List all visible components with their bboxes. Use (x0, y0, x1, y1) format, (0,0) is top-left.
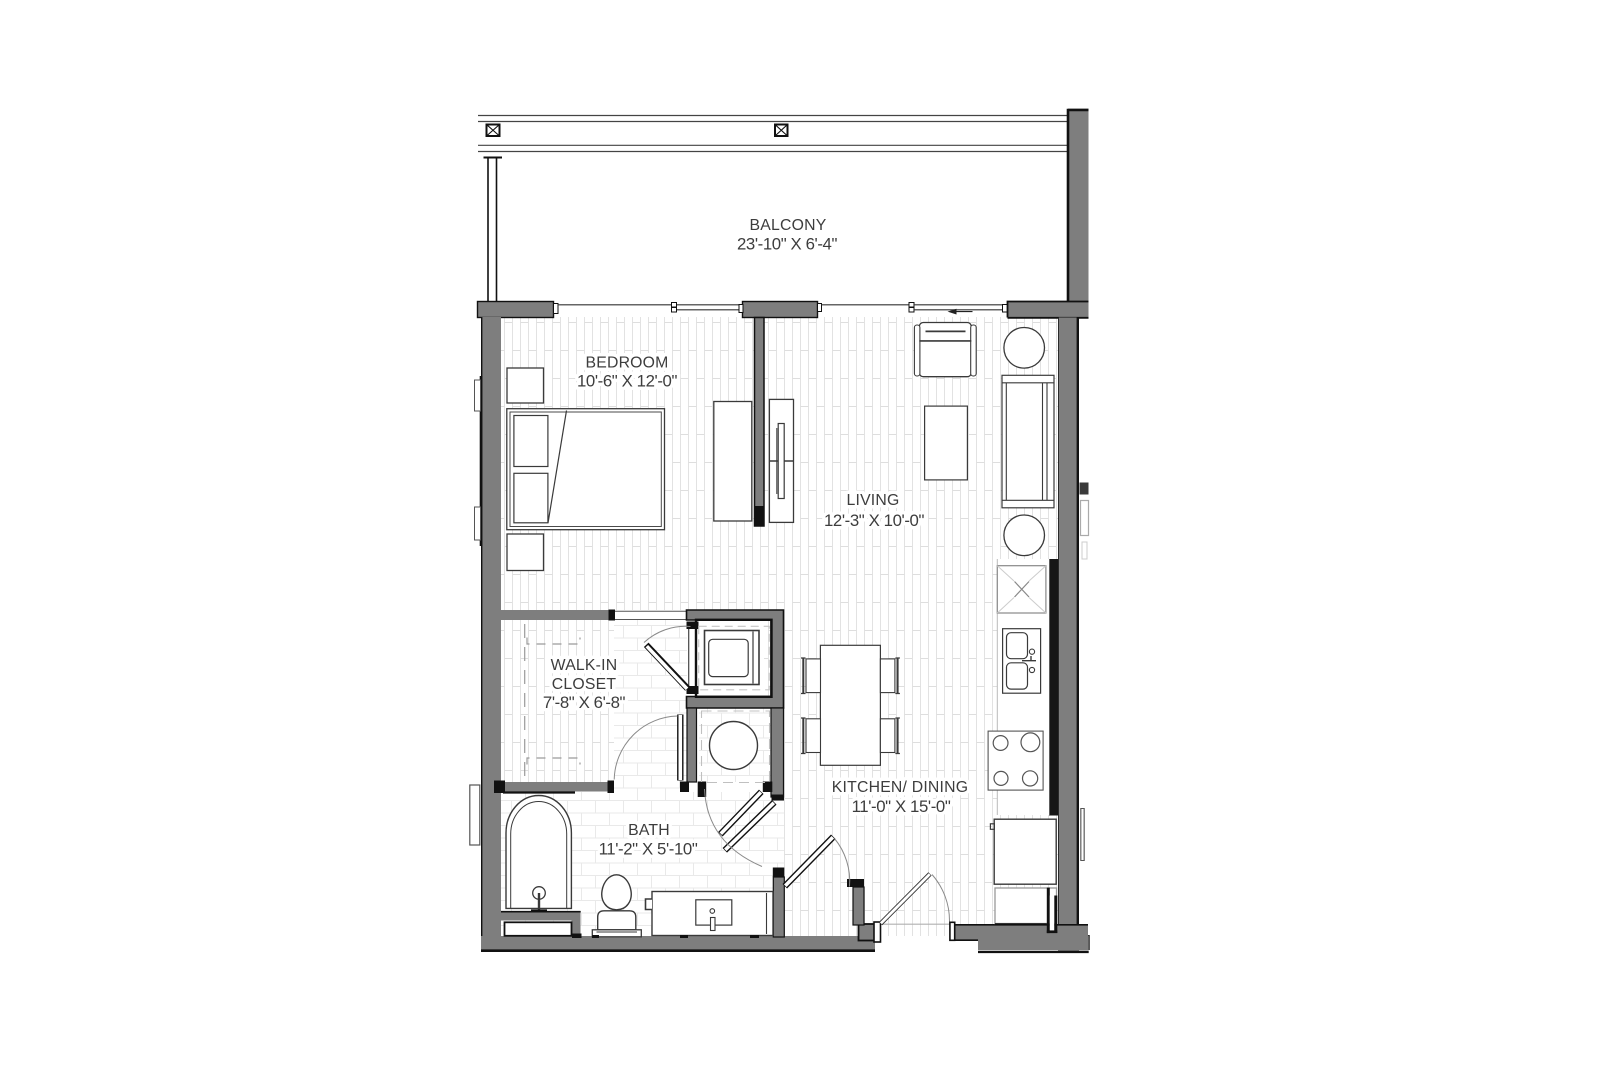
svg-text:12'-3" X 10'-0": 12'-3" X 10'-0" (824, 511, 924, 530)
svg-text:BATH: BATH (628, 822, 670, 839)
svg-text:10'-6" X 12'-0": 10'-6" X 12'-0" (577, 372, 677, 391)
svg-text:BALCONY: BALCONY (750, 217, 827, 234)
svg-text:LIVING: LIVING (847, 492, 900, 509)
svg-text:WALK-IN: WALK-IN (551, 657, 618, 674)
svg-text:BEDROOM: BEDROOM (585, 355, 668, 372)
svg-text:KITCHEN/ DINING: KITCHEN/ DINING (832, 779, 968, 796)
svg-text:11'-2" X 5'-10": 11'-2" X 5'-10" (599, 840, 698, 859)
svg-text:11'-0" X 15'-0": 11'-0" X 15'-0" (852, 797, 951, 816)
svg-text:23'-10" X 6'-4": 23'-10" X 6'-4" (737, 235, 837, 254)
svg-text:CLOSET: CLOSET (552, 676, 617, 693)
svg-text:7'-8" X 6'-8": 7'-8" X 6'-8" (543, 693, 626, 712)
